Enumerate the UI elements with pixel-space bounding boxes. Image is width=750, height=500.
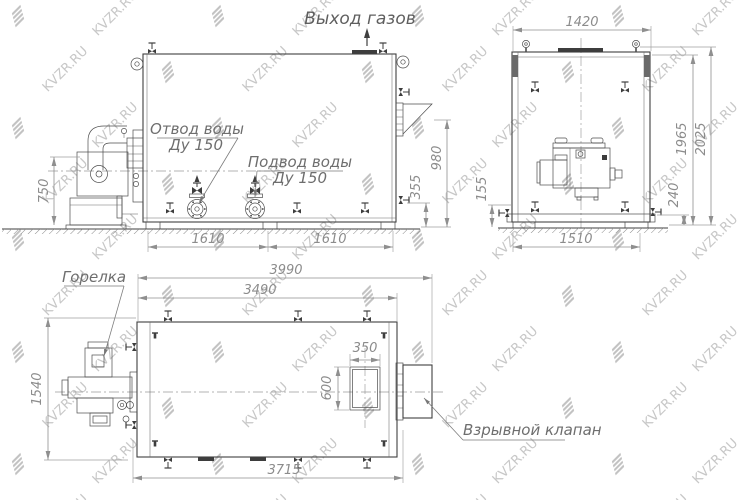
watermark-logo-icon (562, 398, 574, 418)
bottom-valve-icon (361, 203, 369, 214)
gas-flow-arrow-icon (364, 28, 370, 38)
watermark-text: KVZR.RU (90, 0, 141, 39)
watermark-logo-icon (362, 286, 374, 306)
watermark-logo-icon (612, 454, 624, 474)
air-valve-icon (379, 43, 387, 54)
anchor-icon (152, 333, 158, 339)
gas-outlet-label: Выход газов (304, 9, 416, 29)
watermark-logo-icon (162, 62, 174, 82)
watermark-logo-icon (612, 342, 624, 362)
left-edge-valve-icon (126, 421, 137, 429)
watermark-text: KVZR.RU (490, 436, 541, 487)
bottom-edge-valve-icon (363, 458, 371, 469)
dim-240: 240 (667, 183, 682, 208)
watermark-text: KVZR.RU (640, 268, 691, 319)
dim-3990: 3990 (269, 263, 302, 278)
watermark-text: KVZR.RU (90, 100, 141, 151)
watermark-text: KVZR.RU (90, 212, 141, 263)
watermark-logo-icon (12, 342, 24, 362)
watermark-logo-icon (412, 454, 424, 474)
dim-980: 980 (430, 146, 445, 171)
top-edge-valve-icon (363, 311, 371, 322)
side-valve-icon (399, 88, 410, 96)
dim-155: 155 (475, 177, 490, 202)
top-edge-valve-icon (294, 311, 302, 322)
dim-1420: 1420 (565, 15, 598, 30)
flue-collar (352, 50, 377, 54)
watermark-text: KVZR.RU (240, 380, 291, 431)
watermark-text: KVZR.RU (690, 324, 741, 375)
drawing-canvas: KVZR.RUKVZR.RUKVZR.RUKVZR.RUKVZR.RUKVZR.… (0, 0, 750, 500)
watermark-logo-icon (162, 174, 174, 194)
watermark-logo-icon (412, 118, 424, 138)
boiler-drawing: KVZR.RUKVZR.RUKVZR.RUKVZR.RUKVZR.RUKVZR.… (0, 0, 750, 500)
flue-collar-side (558, 48, 603, 52)
watermark-text: KVZR.RU (490, 0, 541, 39)
dim-2025: 2025 (694, 122, 709, 155)
explosion-valve-label: Взрывной клапан (463, 421, 602, 439)
dim-1510: 1510 (559, 232, 592, 247)
watermark-text: KVZR.RU (640, 492, 691, 500)
watermark-text: KVZR.RU (440, 492, 491, 500)
lifting-lug-left (131, 58, 143, 70)
watermark-text: KVZR.RU (40, 44, 91, 95)
watermark-logo-icon (362, 62, 374, 82)
watermark-logo-icon (562, 174, 574, 194)
dim-355: 355 (409, 175, 424, 200)
eyebolt-icon (632, 40, 639, 52)
watermark-text: KVZR.RU (240, 492, 291, 500)
plan-view (55, 311, 443, 468)
watermark-text: KVZR.RU (490, 324, 541, 375)
watermark-text: KVZR.RU (690, 436, 741, 487)
watermark-logo-icon (412, 342, 424, 362)
watermark-logo-icon (562, 62, 574, 82)
watermark-text: KVZR.RU (290, 100, 341, 151)
watermark-text: KVZR.RU (640, 380, 691, 431)
anchor-icon (381, 333, 387, 339)
side-view (498, 38, 668, 236)
watermark-logo-icon (12, 6, 24, 26)
dim-350: 350 (353, 341, 378, 356)
bottom-valve-icon (531, 202, 539, 213)
watermark-text: KVZR.RU (40, 492, 91, 500)
dim-3715: 3715 (267, 463, 300, 478)
face-valve-icon (621, 82, 629, 93)
eyebolt-icon (522, 40, 529, 52)
watermark-text: KVZR.RU (290, 324, 341, 375)
dim-1610-a: 1610 (191, 232, 224, 247)
watermark-text: KVZR.RU (440, 44, 491, 95)
watermark-logo-icon (162, 398, 174, 418)
anchor-icon (152, 441, 158, 447)
bottom-edge-valve-icon (164, 458, 172, 469)
corner-channel (512, 55, 518, 77)
watermark-text: KVZR.RU (690, 212, 741, 263)
corner-channel (644, 55, 650, 77)
bottom-valve-icon (293, 203, 301, 214)
watermark-logo-icon (12, 118, 24, 138)
burner-side (537, 138, 622, 200)
dim-1965: 1965 (675, 122, 690, 155)
watermark-logo-icon (212, 342, 224, 362)
top-edge-valve-icon (164, 311, 172, 322)
dim-750: 750 (37, 179, 52, 204)
watermark-logo-icon (612, 118, 624, 138)
water-outlet-dn: Ду 150 (168, 136, 223, 154)
anchor-icon (381, 441, 387, 447)
watermark-logo-icon (362, 398, 374, 418)
dim-3490: 3490 (243, 283, 276, 298)
watermark-text: KVZR.RU (640, 156, 691, 207)
watermark-logo-icon (362, 174, 374, 194)
dim-1540: 1540 (30, 372, 45, 405)
burner-label: Горелка (62, 268, 126, 286)
watermark-layer: KVZR.RUKVZR.RUKVZR.RUKVZR.RUKVZR.RUKVZR.… (12, 0, 750, 500)
water-outlet-valve (188, 175, 207, 219)
lifting-lug-right (397, 56, 409, 68)
watermark-logo-icon (212, 6, 224, 26)
watermark-text: KVZR.RU (290, 436, 341, 487)
watermark-text: KVZR.RU (490, 212, 541, 263)
watermark-logo-icon (12, 454, 24, 474)
watermark-logo-icon (162, 286, 174, 306)
watermark-text: KVZR.RU (40, 380, 91, 431)
watermark-text: KVZR.RU (690, 0, 741, 39)
dim-600: 600 (320, 376, 335, 401)
bottom-valve-icon (166, 203, 174, 214)
bottom-valve-icon (621, 202, 629, 213)
watermark-text: KVZR.RU (440, 268, 491, 319)
watermark-logo-icon (562, 286, 574, 306)
water-inlet-dn: Ду 150 (272, 169, 327, 187)
watermark-text: KVZR.RU (490, 100, 541, 151)
left-drain-valve-icon (499, 209, 510, 217)
watermark-text: KVZR.RU (90, 436, 141, 487)
dim-1610-b: 1610 (313, 232, 346, 247)
watermark-logo-icon (612, 6, 624, 26)
face-valve-icon (531, 82, 539, 93)
air-valve-icon (148, 43, 156, 54)
explosion-valve-duct (396, 363, 432, 420)
extension-lines (44, 26, 716, 483)
watermark-text: KVZR.RU (240, 44, 291, 95)
